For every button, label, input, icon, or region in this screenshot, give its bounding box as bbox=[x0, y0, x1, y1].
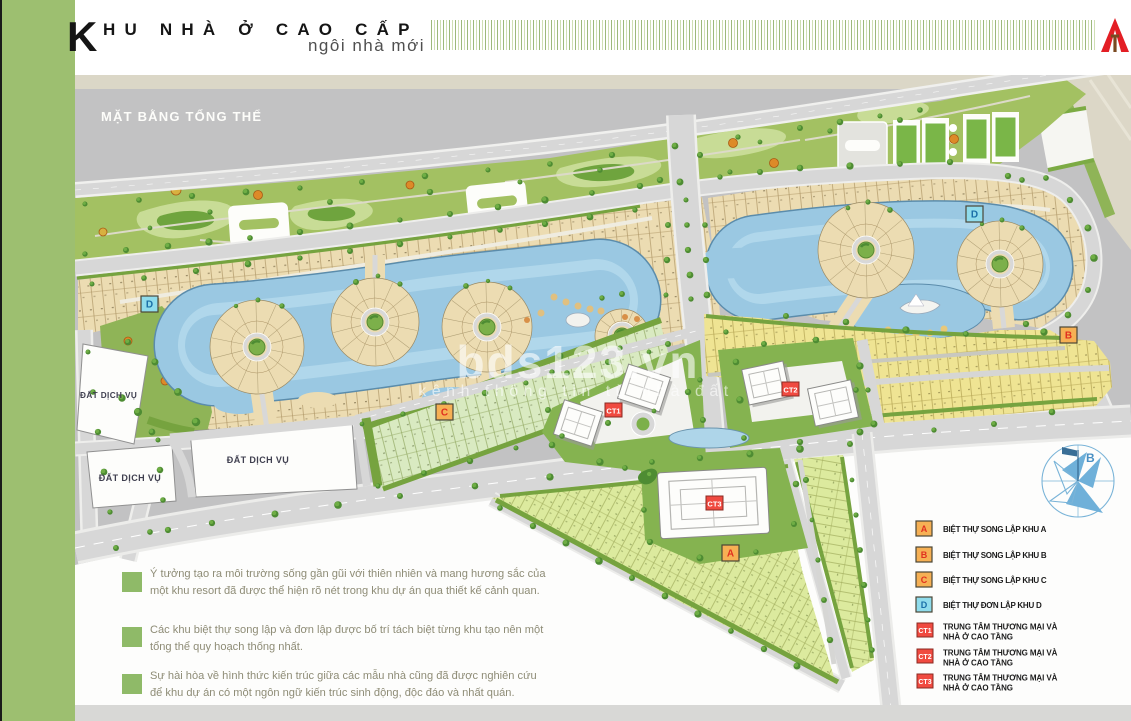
svg-text:MẶT BẰNG TỔNG THỂ: MẶT BẰNG TỔNG THỂ bbox=[101, 109, 262, 124]
svg-text:CT3: CT3 bbox=[918, 679, 931, 686]
svg-text:A: A bbox=[921, 524, 928, 534]
svg-text:A: A bbox=[727, 549, 734, 560]
svg-text:D: D bbox=[146, 300, 153, 311]
svg-text:ĐẤT DỊCH VỤ: ĐẤT DỊCH VỤ bbox=[80, 390, 137, 400]
svg-text:BIỆT THỰ ĐƠN LẬP KHU D: BIỆT THỰ ĐƠN LẬP KHU D bbox=[943, 601, 1042, 610]
svg-text:CT3: CT3 bbox=[707, 500, 721, 509]
svg-text:NHÀ Ở CAO TẦNG: NHÀ Ở CAO TẦNG bbox=[943, 658, 1013, 668]
svg-text:bds123.vn: bds123.vn bbox=[457, 336, 700, 388]
svg-text:CT1: CT1 bbox=[918, 628, 931, 635]
svg-text:ĐẤT DỊCH VỤ: ĐẤT DỊCH VỤ bbox=[227, 455, 289, 465]
svg-text:D: D bbox=[971, 210, 978, 221]
svg-text:BIỆT THỰ SONG LẬP KHU B: BIỆT THỰ SONG LẬP KHU B bbox=[943, 551, 1047, 560]
svg-text:B: B bbox=[1086, 451, 1095, 465]
svg-text:BIỆT THỰ SONG LẬP KHU A: BIỆT THỰ SONG LẬP KHU A bbox=[943, 525, 1047, 534]
svg-text:TRUNG TÂM THƯƠNG MẠI VÀ: TRUNG TÂM THƯƠNG MẠI VÀ bbox=[943, 623, 1058, 632]
svg-text:CT2: CT2 bbox=[918, 654, 931, 661]
svg-text:D: D bbox=[921, 600, 928, 610]
svg-text:B: B bbox=[921, 550, 928, 560]
svg-text:kênh thông tin từ nhà đất: kênh thông tin từ nhà đất bbox=[418, 383, 733, 400]
svg-text:C: C bbox=[441, 408, 448, 419]
svg-text:CT2: CT2 bbox=[783, 386, 797, 395]
svg-text:ĐẤT DỊCH VỤ: ĐẤT DỊCH VỤ bbox=[99, 473, 161, 483]
svg-text:NHÀ Ở CAO TẦNG: NHÀ Ở CAO TẦNG bbox=[943, 683, 1013, 693]
svg-text:B: B bbox=[1065, 331, 1072, 342]
svg-text:TRUNG TÂM THƯƠNG MẠI VÀ: TRUNG TÂM THƯƠNG MẠI VÀ bbox=[943, 649, 1058, 658]
svg-text:BIỆT THỰ SONG LẬP KHU C: BIỆT THỰ SONG LẬP KHU C bbox=[943, 576, 1047, 585]
svg-text:NHÀ Ở CAO TẦNG: NHÀ Ở CAO TẦNG bbox=[943, 632, 1013, 642]
svg-text:CT1: CT1 bbox=[606, 407, 620, 416]
svg-text:TRUNG TÂM THƯƠNG MẠI VÀ: TRUNG TÂM THƯƠNG MẠI VÀ bbox=[943, 674, 1058, 683]
svg-text:C: C bbox=[921, 575, 928, 585]
